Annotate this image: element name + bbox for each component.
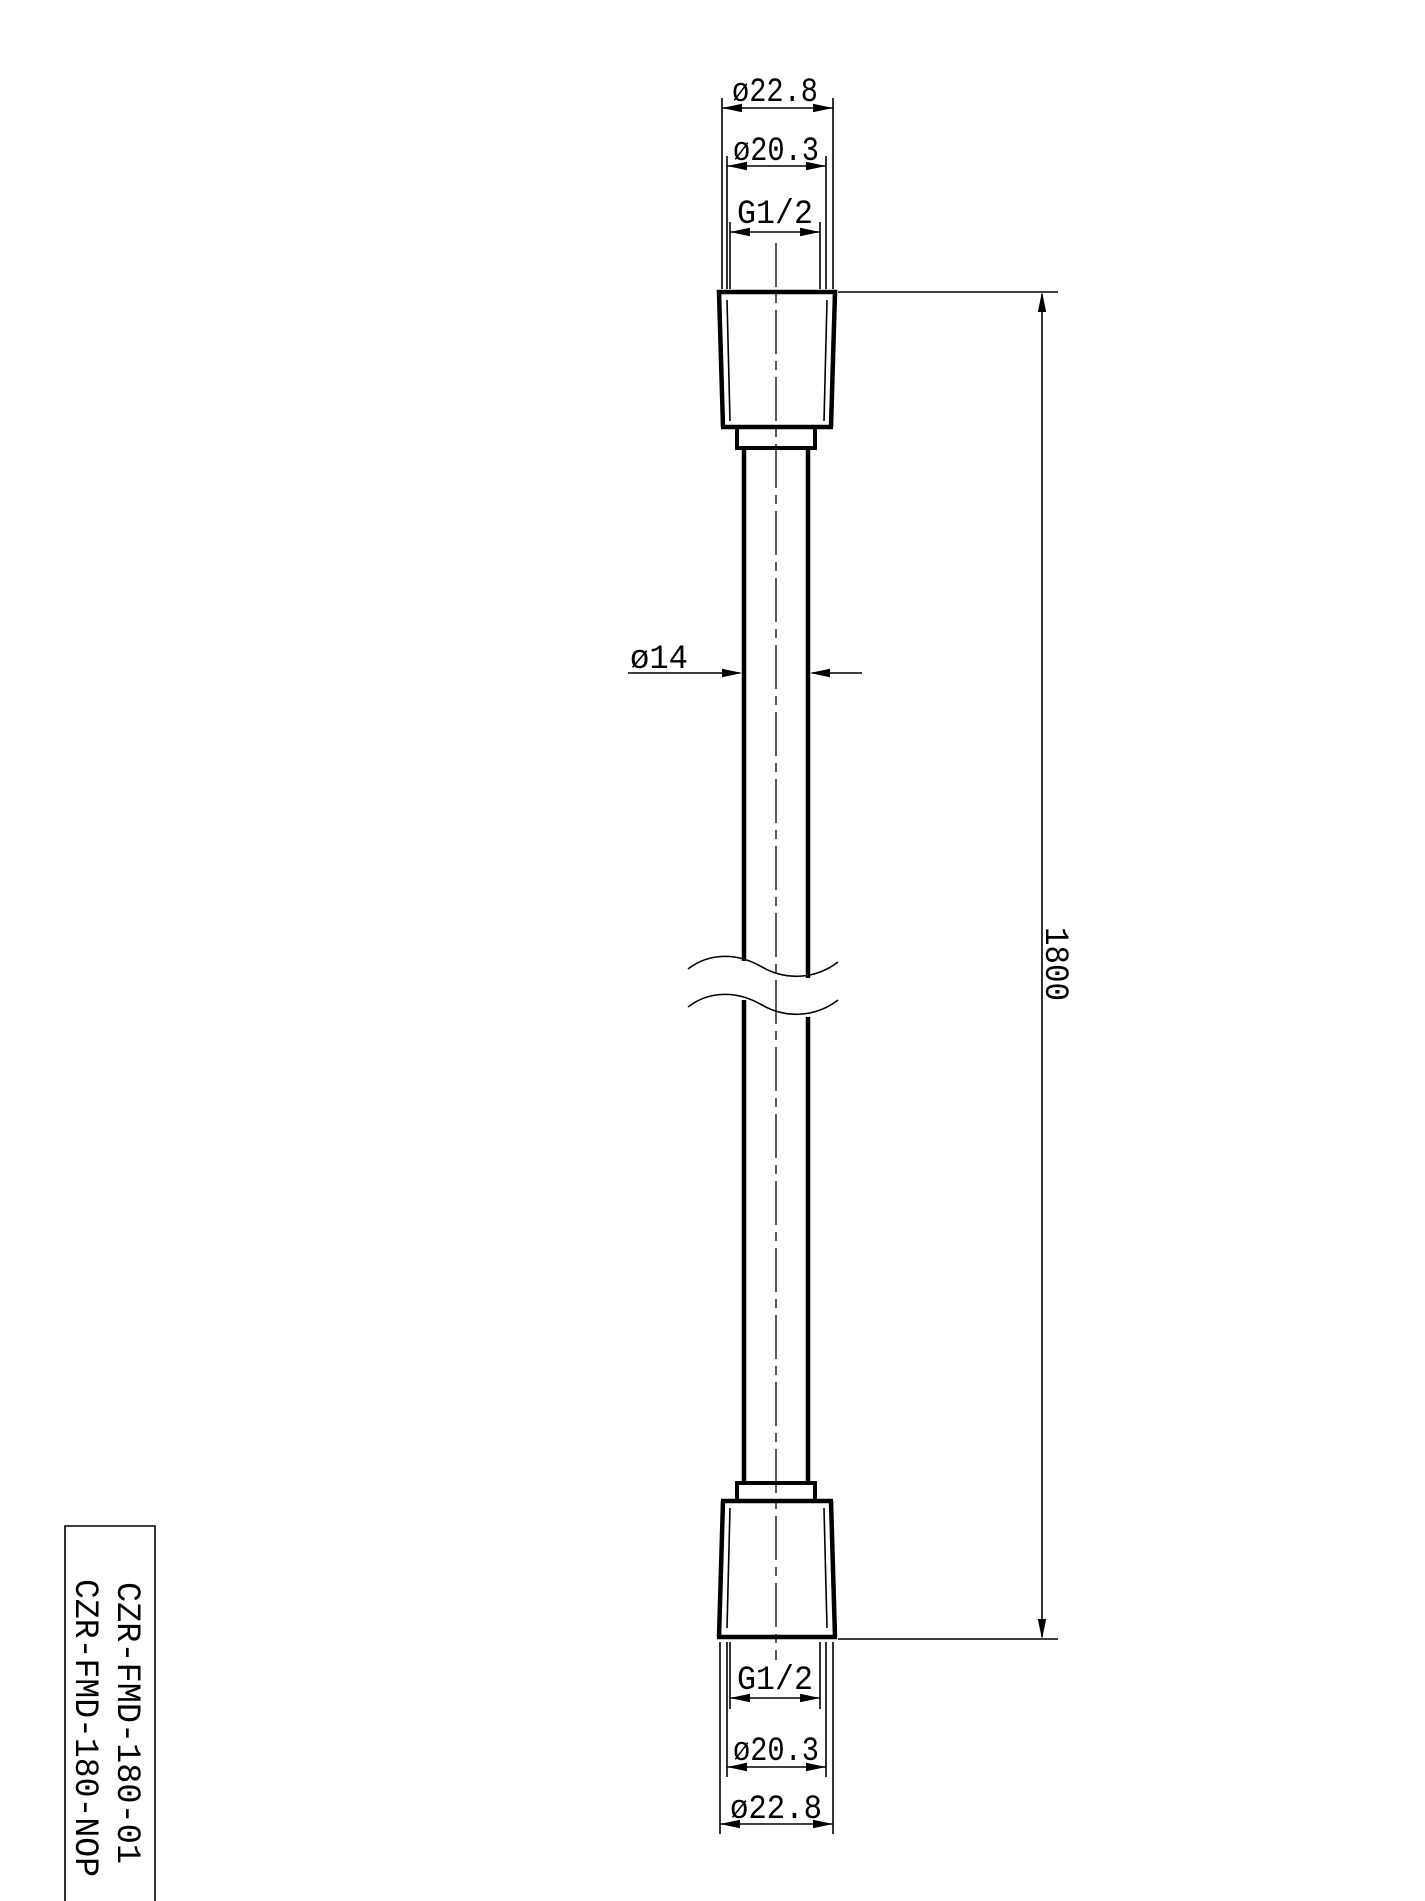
drawing-sheet: ø22.8 ø20.3 G1/2 — [0, 0, 1425, 1901]
part-number-primary: CZR-FMD-180-01 — [107, 1582, 145, 1864]
hose-tube — [688, 446, 838, 1485]
bottom-connector — [717, 1483, 837, 1637]
bottom-dimension-thread: G1/2 — [730, 1642, 820, 1709]
top-connector — [719, 292, 835, 448]
dim-label-top-outer-diameter: ø22.8 — [732, 74, 818, 112]
hose-technical-drawing: ø22.8 ø20.3 G1/2 — [0, 0, 1425, 1901]
arrowhead-left-icon — [722, 669, 742, 677]
connector-inner-edge-right — [824, 300, 827, 421]
arrowhead-right-icon — [813, 1820, 833, 1828]
top-dimension-thread: G1/2 — [730, 196, 820, 289]
dim-label-length: 1800 — [1035, 927, 1073, 1001]
arrowhead-up-icon — [1038, 292, 1046, 312]
break-line-upper — [688, 956, 838, 976]
title-block: CZR-FMD-180-01 CZR-FMD-180-NOP — [65, 1526, 155, 1901]
top-dimension-outer-diameter: ø22.8 — [722, 74, 833, 289]
arrowhead-right-icon — [813, 104, 833, 112]
break-line-lower — [688, 994, 838, 1014]
length-dimension: 1800 — [838, 292, 1073, 1639]
connector-side-right — [831, 1501, 835, 1637]
connector-side-left — [719, 1501, 723, 1637]
connector-inner-edge-right — [824, 1508, 827, 1628]
part-number-secondary: CZR-FMD-180-NOP — [65, 1579, 103, 1877]
connector-inner-edge-left — [727, 300, 730, 421]
connector-outline — [719, 292, 835, 427]
connector-inner-edge-left — [727, 1508, 730, 1628]
arrowhead-down-icon — [1038, 1619, 1046, 1639]
